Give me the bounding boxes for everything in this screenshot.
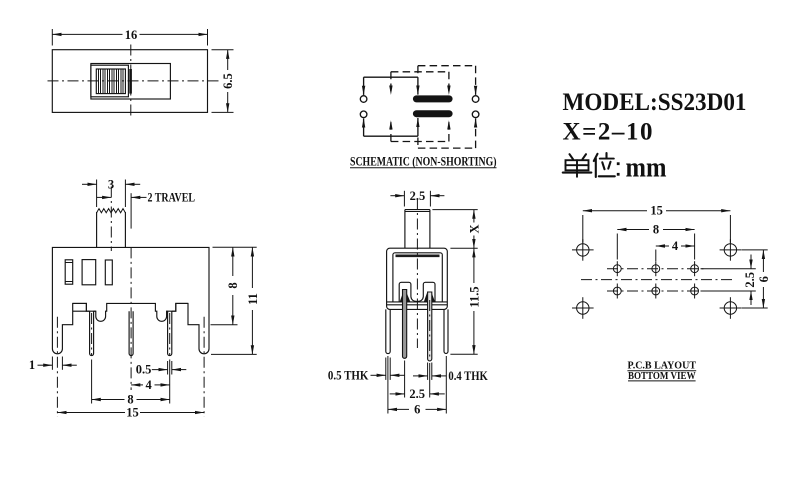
svg-text:8: 8: [127, 393, 133, 407]
svg-text:15: 15: [126, 406, 139, 420]
svg-text:3: 3: [108, 177, 114, 191]
svg-text:2.5: 2.5: [743, 272, 757, 288]
svg-text:8: 8: [226, 282, 240, 288]
svg-text:0.5 THK: 0.5 THK: [328, 368, 369, 382]
svg-text:2.5: 2.5: [410, 189, 426, 203]
svg-text:6: 6: [414, 402, 420, 416]
svg-text:11.5: 11.5: [467, 286, 481, 307]
svg-text:SCHEMATIC (NON-SHORTING): SCHEMATIC (NON-SHORTING): [350, 153, 497, 168]
svg-text:16: 16: [125, 28, 138, 42]
svg-text:6: 6: [757, 276, 771, 282]
svg-text:0.4 THK: 0.4 THK: [448, 369, 488, 383]
svg-text:MODEL:SS23D01: MODEL:SS23D01: [563, 89, 747, 116]
svg-text:2 TRAVEL: 2 TRAVEL: [148, 190, 196, 204]
svg-text:BOTTOM VIEW: BOTTOM VIEW: [628, 370, 696, 382]
svg-text:X: X: [467, 224, 481, 233]
svg-text:15: 15: [650, 204, 663, 218]
svg-text:1: 1: [29, 358, 35, 372]
svg-text:11: 11: [246, 293, 260, 305]
svg-text:mm: mm: [626, 152, 667, 184]
svg-text:0.5: 0.5: [136, 363, 152, 377]
svg-text:8: 8: [653, 223, 659, 237]
svg-text:X=2–10: X=2–10: [563, 118, 653, 145]
svg-text:6.5: 6.5: [221, 73, 235, 89]
svg-text:4: 4: [672, 239, 679, 253]
svg-text:2.5: 2.5: [409, 387, 425, 401]
svg-text:4: 4: [145, 378, 152, 392]
